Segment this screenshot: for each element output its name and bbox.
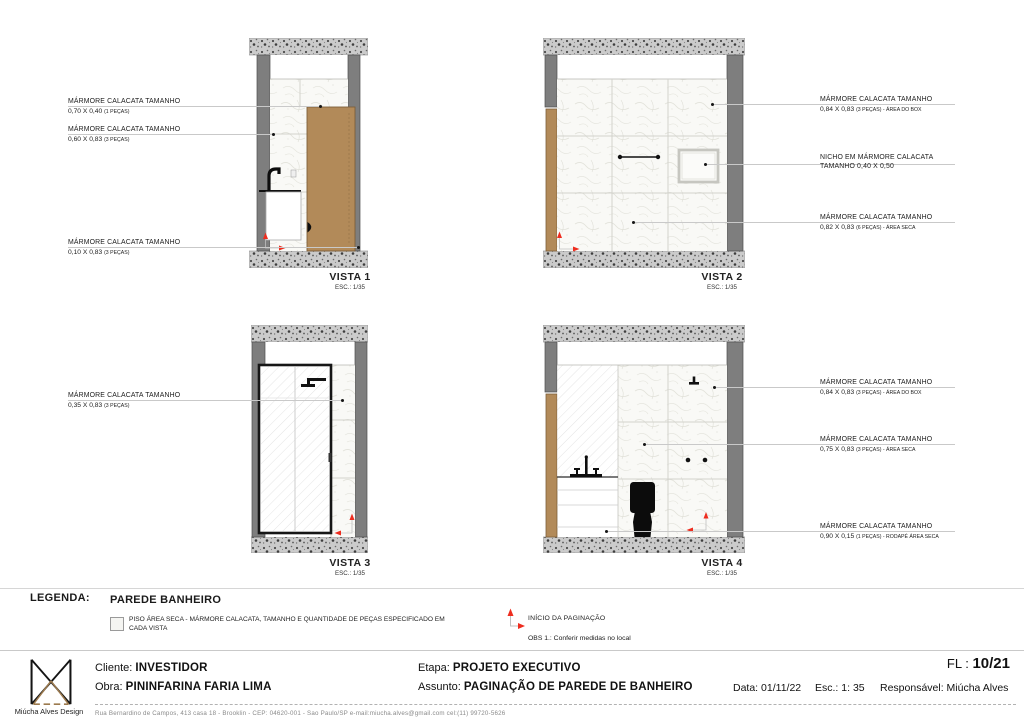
fixture-point bbox=[703, 458, 708, 463]
annotation-v1-3: MÁRMORE CALACATA TAMANHO 0,10 X 0,83 (3 … bbox=[68, 238, 188, 257]
vista-scale: ESC.: 1/35 bbox=[674, 570, 770, 577]
concrete-slab-top bbox=[543, 38, 745, 55]
vista4-title: VISTA 4 ESC.: 1/35 bbox=[674, 557, 770, 577]
annotation-note: (3 PEÇAS) bbox=[104, 403, 129, 409]
drawing-sheet: MÁRMORE CALACATA TAMANHO 0,70 X 0,40 (1 … bbox=[0, 0, 1024, 724]
legend-marker-label: INÍCIO DA PAGINAÇÃO bbox=[528, 615, 605, 622]
leader-dot bbox=[713, 386, 716, 389]
annotation-title: MÁRMORE CALACATA TAMANHO bbox=[68, 97, 188, 106]
annotation-note: (3 PEÇAS) - ÁREA SECA bbox=[856, 447, 915, 453]
vista-scale: ESC.: 1/35 bbox=[302, 284, 398, 291]
concrete-slab-bottom bbox=[543, 251, 745, 268]
door bbox=[307, 107, 355, 251]
annotation-title: MÁRMORE CALACATA TAMANHO bbox=[68, 238, 188, 247]
annotation-v4-3: MÁRMORE CALACATA TAMANHO 0,90 X 0,15 (1 … bbox=[820, 522, 942, 541]
leader-dot bbox=[605, 530, 608, 533]
vista1-title: VISTA 1 ESC.: 1/35 bbox=[302, 271, 398, 291]
assunto-row: Assunto: PAGINAÇÃO DE PAREDE DE BANHEIRO bbox=[418, 681, 693, 693]
divider-dashed bbox=[95, 704, 1016, 705]
annotation-v3-1: MÁRMORE CALACATA TAMANHO 0,35 X 0,83 (3 … bbox=[68, 391, 188, 410]
etapa-value: PROJETO EXECUTIVO bbox=[453, 662, 581, 674]
etapa-label: Etapa: bbox=[418, 662, 450, 674]
wall-column-left bbox=[545, 55, 557, 107]
annotation-v1-1: MÁRMORE CALACATA TAMANHO 0,70 X 0,40 (1 … bbox=[68, 97, 188, 116]
legend-heading: LEGENDA: bbox=[30, 592, 90, 604]
assunto-label: Assunto: bbox=[418, 681, 461, 693]
fixture-point bbox=[686, 458, 691, 463]
fl-label: FL : bbox=[947, 656, 969, 671]
responsavel-value: Miúcha Alves bbox=[947, 682, 1009, 694]
leader-dot bbox=[272, 133, 275, 136]
esc-field: Esc.: 1: 35 bbox=[815, 682, 865, 694]
vista-scale: ESC.: 1/35 bbox=[302, 570, 398, 577]
annotation-title: MÁRMORE CALACATA TAMANHO bbox=[820, 378, 946, 387]
data-field: Data: 01/11/22 bbox=[733, 682, 801, 694]
wall-column-left bbox=[545, 342, 557, 392]
annotation-title: MÁRMORE CALACATA TAMANHO bbox=[820, 213, 946, 222]
legend-swatch bbox=[110, 617, 124, 631]
legend-band: LEGENDA: PAREDE BANHEIRO PISO ÁREA SECA … bbox=[0, 588, 1024, 651]
annotation-title: MÁRMORE CALACATA TAMANHO bbox=[820, 522, 942, 531]
cliente-label: Cliente: bbox=[95, 662, 132, 674]
marble-tile-strip bbox=[331, 365, 355, 537]
title-block: Miúcha Alves Design Cliente: INVESTIDOR … bbox=[0, 650, 1024, 724]
annotation-note: (3 PEÇAS) - ÁREA DO BOX bbox=[856, 107, 921, 113]
legend-group-title: PAREDE BANHEIRO bbox=[110, 594, 221, 606]
brand-name: Miúcha Alves Design bbox=[4, 707, 94, 716]
annotation-v4-2: MÁRMORE CALACATA TAMANHO 0,75 X 0,83 (3 … bbox=[820, 435, 946, 454]
annotation-v1-2: MÁRMORE CALACATA TAMANHO 0,60 X 0,83 (3 … bbox=[68, 125, 188, 144]
leader-dot bbox=[632, 221, 635, 224]
annotation-v2-2: NICHO EM MÁRMORE CALACATA TAMANHO 0,40 X… bbox=[820, 153, 946, 171]
annotation-note: (1 PEÇAS) - RODAPÉ ÁREA SECA bbox=[856, 534, 939, 540]
annotation-dim: 0,60 X 0,83 bbox=[68, 136, 102, 143]
brand-logo bbox=[24, 656, 78, 706]
etapa-row: Etapa: PROJETO EXECUTIVO bbox=[418, 662, 581, 674]
annotation-note: (3 PEÇAS) bbox=[104, 137, 129, 143]
annotation-v2-3: MÁRMORE CALACATA TAMANHO 0,82 X 0,83 (6 … bbox=[820, 213, 946, 232]
data-label: Data: bbox=[733, 682, 758, 694]
annotation-note: (6 PEÇAS) - ÁREA SECA bbox=[856, 225, 915, 231]
annotation-dim: 0,82 X 0,83 bbox=[820, 224, 854, 231]
annotation-title: MÁRMORE CALACATA TAMANHO bbox=[820, 95, 946, 104]
vista3-title: VISTA 3 ESC.: 1/35 bbox=[302, 557, 398, 577]
door-frame-edge bbox=[546, 394, 557, 537]
annotation-title: NICHO EM MÁRMORE CALACATA bbox=[820, 153, 946, 162]
responsavel-field: Responsável: Miúcha Alves bbox=[880, 682, 1008, 694]
annotation-note: (3 PEÇAS) - ÁREA DO BOX bbox=[856, 390, 921, 396]
vista-label: VISTA 2 bbox=[674, 271, 770, 283]
annotation-dim: 0,10 X 0,83 bbox=[68, 249, 102, 256]
office-address: Rua Bernardino de Campos, 413 casa 18 - … bbox=[95, 710, 505, 717]
concrete-slab-bottom bbox=[543, 537, 745, 553]
annotation-dim: 0,35 X 0,83 bbox=[68, 402, 102, 409]
shower-door-handle bbox=[329, 453, 332, 462]
door-frame-edge bbox=[546, 109, 557, 251]
vista3-elevation bbox=[251, 325, 368, 553]
leader-dot bbox=[704, 163, 707, 166]
annotation-dim: 0,75 X 0,83 bbox=[820, 446, 854, 453]
legend-obs-note: OBS 1.: Conferir medidas no local bbox=[528, 635, 631, 642]
annotation-dim: 0,84 X 0,83 bbox=[820, 106, 854, 113]
leader-dot bbox=[319, 105, 322, 108]
annotation-v2-1: MÁRMORE CALACATA TAMANHO 0,84 X 0,83 (3 … bbox=[820, 95, 946, 114]
vista2-title: VISTA 2 ESC.: 1/35 bbox=[674, 271, 770, 291]
annotation-title: MÁRMORE CALACATA TAMANHO bbox=[68, 125, 188, 134]
cliente-value: INVESTIDOR bbox=[135, 662, 207, 674]
annotation-v4-1: MÁRMORE CALACATA TAMANHO 0,84 X 0,83 (3 … bbox=[820, 378, 946, 397]
concrete-slab-bottom bbox=[251, 537, 368, 553]
vista-label: VISTA 1 bbox=[302, 271, 398, 283]
wall-column-right bbox=[727, 342, 743, 537]
obra-row: Obra: PININFARINA FARIA LIMA bbox=[95, 681, 272, 693]
wall-outlet bbox=[291, 170, 296, 177]
concrete-slab-top bbox=[543, 325, 745, 342]
sink-cabinet bbox=[266, 192, 301, 240]
cliente-row: Cliente: INVESTIDOR bbox=[95, 662, 208, 674]
obra-value: PININFARINA FARIA LIMA bbox=[126, 681, 272, 693]
toilet bbox=[630, 482, 655, 537]
annotation-note: (3 PEÇAS) bbox=[104, 250, 129, 256]
leader-dot bbox=[341, 399, 344, 402]
annotation-title: MÁRMORE CALACATA TAMANHO bbox=[820, 435, 946, 444]
legend-swatch-text: PISO ÁREA SECA - MÁRMORE CALACATA, TAMAN… bbox=[129, 616, 449, 633]
assunto-value: PAGINAÇÃO DE PAREDE DE BANHEIRO bbox=[464, 681, 693, 693]
annotation-title: MÁRMORE CALACATA TAMANHO bbox=[68, 391, 188, 400]
concrete-slab-top bbox=[249, 38, 368, 55]
fl-value: 10/21 bbox=[972, 655, 1010, 672]
data-value: 01/11/22 bbox=[761, 682, 801, 694]
responsavel-label: Responsável: bbox=[880, 682, 944, 694]
esc-value: 1: 35 bbox=[841, 682, 864, 694]
annotation-title-line2: TAMANHO 0,40 X 0,50 bbox=[820, 162, 946, 171]
esc-label: Esc.: bbox=[815, 682, 838, 694]
vista-label: VISTA 3 bbox=[302, 557, 398, 569]
obra-label: Obra: bbox=[95, 681, 123, 693]
pagination-start-icon bbox=[506, 607, 526, 631]
vista-label: VISTA 4 bbox=[674, 557, 770, 569]
leader-dot bbox=[711, 103, 714, 106]
wall-column-right bbox=[355, 342, 367, 537]
annotation-dim: 0,90 X 0,15 bbox=[820, 533, 854, 540]
concrete-slab-bottom bbox=[249, 251, 368, 268]
concrete-slab-top bbox=[251, 325, 368, 342]
vista-scale: ESC.: 1/35 bbox=[674, 284, 770, 291]
annotation-note: (1 PEÇAS) bbox=[104, 109, 129, 115]
leader-dot bbox=[357, 246, 360, 249]
sheet-number: FL : 10/21 bbox=[947, 655, 1010, 672]
annotation-dim: 0,84 X 0,83 bbox=[820, 389, 854, 396]
vista4-elevation bbox=[543, 325, 745, 553]
vista1-elevation bbox=[249, 38, 368, 268]
vista2-elevation bbox=[543, 38, 745, 268]
annotation-dim: 0,70 X 0,40 bbox=[68, 108, 102, 115]
marble-niche bbox=[679, 150, 718, 182]
leader-dot bbox=[643, 443, 646, 446]
